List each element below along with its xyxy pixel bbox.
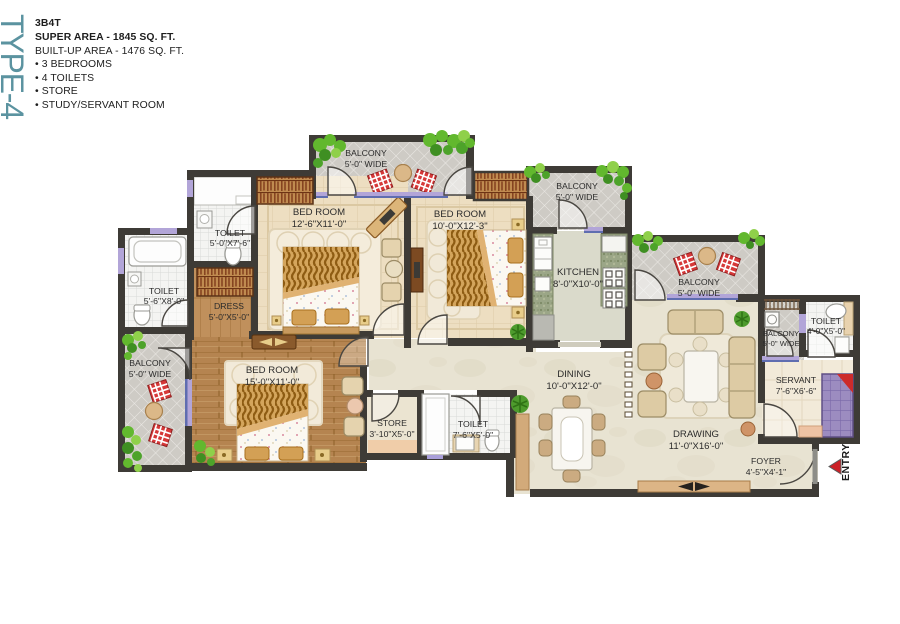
svg-text:TOILET: TOILET xyxy=(215,228,246,238)
svg-text:7'-6"X5'-0": 7'-6"X5'-0" xyxy=(453,430,493,440)
svg-text:TOILET: TOILET xyxy=(458,419,489,429)
svg-text:STORE: STORE xyxy=(377,418,407,428)
svg-text:15'-0"X11'-0": 15'-0"X11'-0" xyxy=(245,377,300,388)
svg-text:BED ROOM: BED ROOM xyxy=(246,365,298,376)
svg-text:TOILET: TOILET xyxy=(149,286,180,296)
svg-text:5'-0"X5'-0": 5'-0"X5'-0" xyxy=(209,312,249,322)
svg-text:7'-6"X6'-6": 7'-6"X6'-6" xyxy=(776,386,816,396)
svg-text:11'-0"X16'-0": 11'-0"X16'-0" xyxy=(669,441,724,452)
svg-text:10'-0"X12'-3": 10'-0"X12'-3" xyxy=(432,221,487,232)
svg-text:5'-0"X7'-6": 5'-0"X7'-6" xyxy=(210,238,250,248)
svg-text:BALCONY: BALCONY xyxy=(678,277,720,287)
svg-text:TYPE-4: TYPE-4 xyxy=(0,14,30,119)
svg-text:BED ROOM: BED ROOM xyxy=(293,207,345,218)
svg-text:4'-0"X5'-0": 4'-0"X5'-0" xyxy=(807,327,845,336)
svg-text:4'-5"X4'-1": 4'-5"X4'-1" xyxy=(746,467,786,477)
svg-text:5'-0" WIDE: 5'-0" WIDE xyxy=(762,339,799,348)
svg-text:KITCHEN: KITCHEN xyxy=(557,267,599,278)
svg-text:5'-0" WIDE: 5'-0" WIDE xyxy=(345,159,388,169)
svg-text:8'-0"X10'-0": 8'-0"X10'-0" xyxy=(553,279,603,290)
svg-text:BALCONY: BALCONY xyxy=(556,181,598,191)
svg-text:5'-0" WIDE: 5'-0" WIDE xyxy=(129,369,172,379)
svg-text:BALCONY: BALCONY xyxy=(129,358,171,368)
svg-text:BALCONY: BALCONY xyxy=(763,329,799,338)
svg-text:FOYER: FOYER xyxy=(751,456,781,466)
svg-text:12'-6"X11'-0": 12'-6"X11'-0" xyxy=(292,219,347,230)
svg-text:5'-0" WIDE: 5'-0" WIDE xyxy=(556,192,599,202)
svg-text:3'-10"X5'-0": 3'-10"X5'-0" xyxy=(369,429,414,439)
svg-text:10'-0"X12'-0": 10'-0"X12'-0" xyxy=(546,381,601,392)
svg-text:DINING: DINING xyxy=(557,369,591,380)
svg-text:5'-6"X8'-0": 5'-6"X8'-0" xyxy=(144,296,184,306)
svg-text:BALCONY: BALCONY xyxy=(345,148,387,158)
svg-text:5'-0" WIDE: 5'-0" WIDE xyxy=(678,288,721,298)
svg-text:TOILET: TOILET xyxy=(811,316,842,326)
svg-text:ENTRY: ENTRY xyxy=(840,443,852,481)
svg-text:BED ROOM: BED ROOM xyxy=(434,209,486,220)
svg-text:SERVANT: SERVANT xyxy=(776,375,817,385)
svg-text:DRESS: DRESS xyxy=(214,301,244,311)
svg-text:DRAWING: DRAWING xyxy=(673,429,719,440)
